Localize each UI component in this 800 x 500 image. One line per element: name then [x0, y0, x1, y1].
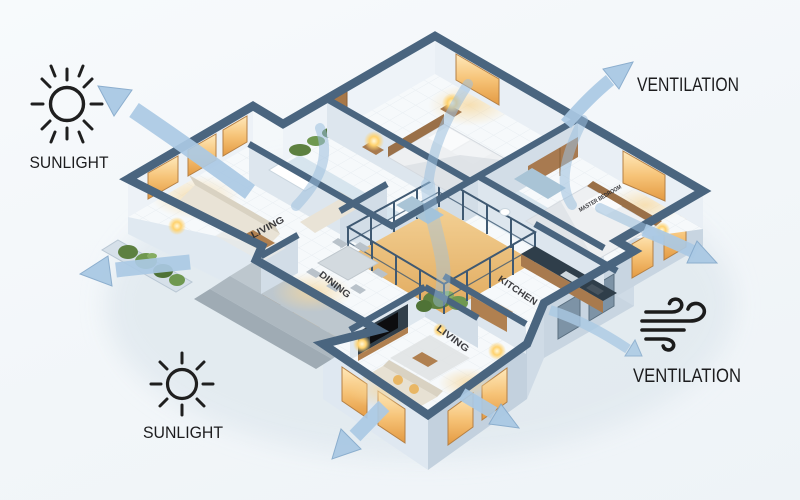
sunlight-label-top-left: SUNLIGHT [30, 153, 109, 172]
ventilation-label-bottom-right: VENTILATION [633, 366, 741, 387]
sun-icon [32, 66, 102, 142]
airflow-arrow-top-right [566, 62, 633, 124]
house-airflow-diagram: LIVING DINING KITCHEN LIVING MASTER BEDR… [0, 0, 800, 500]
sunlight-label-bottom-left: SUNLIGHT [143, 423, 223, 442]
ventilation-label-top-right: VENTILATION [637, 75, 739, 96]
isometric-house-scene: LIVING DINING KITCHEN LIVING MASTER BEDR… [0, 0, 800, 500]
